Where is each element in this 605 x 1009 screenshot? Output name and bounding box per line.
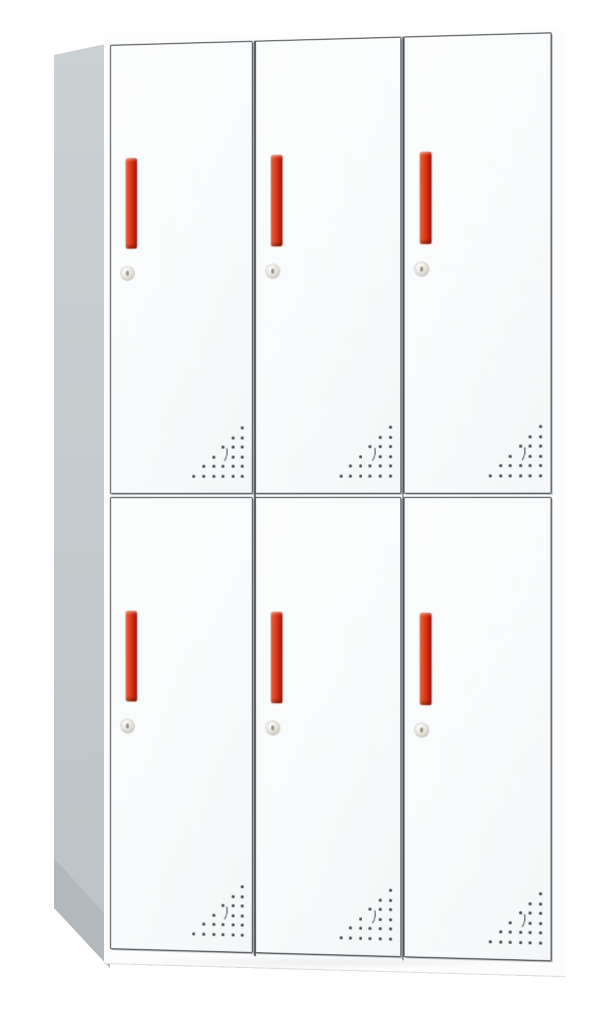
vent-hole-dot [241,885,244,888]
vent-hole-dot [489,474,492,477]
vent-hole-dot [539,902,542,905]
locker-door-r2-c2 [255,497,401,957]
vent-hole-dot [193,475,196,478]
floor-shadow [110,958,546,968]
vent-hole-dot [241,465,244,468]
vent-hole-dot [539,464,542,467]
vent-hole-dot [529,474,532,477]
vent-hole-dot [231,465,234,468]
vent-crescent [217,903,229,922]
vent-hole-dot [379,445,382,448]
vent-hole-dot [369,937,372,940]
vent-hole-dot [241,924,244,927]
vent-hole-dot [389,455,392,458]
vent-hole-dot [359,475,362,478]
locker-door-r1-c2 [255,37,401,494]
vent-hole-dot [529,435,532,438]
vent-hole-dot [231,446,234,449]
vent-holes [193,884,245,937]
vent-hole-dot [509,921,512,924]
vent-hole-dot [379,435,382,438]
vent-hole-dot [379,898,382,901]
vent-hole-dot [499,940,502,943]
vent-hole-dot [529,902,532,905]
vent-hole-dot [241,446,244,449]
vent-hole-dot [389,938,392,941]
vent-hole-dot [539,912,542,915]
vent-hole-dot [529,922,532,925]
vent-hole-dot [369,465,372,468]
locker-door-r1-c1 [110,41,253,494]
vent-crescent [514,444,526,463]
vent-hole-dot [212,923,215,926]
door-lock [415,262,428,275]
vent-hole-dot [231,895,234,898]
vent-hole-dot [241,934,244,937]
vent-hole-dot [509,931,512,934]
vent-hole-dot [349,475,352,478]
vent-hole-dot [539,922,542,925]
vent-hole-dot [539,455,542,458]
door-lock [121,719,134,732]
vent-hole-dot [241,905,244,908]
vent-hole-dot [193,932,196,935]
door-handle [272,155,283,246]
vent-hole-dot [379,465,382,468]
vent-hole-dot [529,941,532,944]
vent-hole-dot [222,923,225,926]
doors-grid [110,32,552,964]
locker-door-r1-c3 [403,32,551,494]
vent-hole-dot [509,941,512,944]
vent-hole-dot [222,465,225,468]
vent-hole-dot [349,465,352,468]
vent-hole-dot [539,892,542,895]
keyhole-icon [272,269,275,274]
vent-holes [339,426,391,478]
vent-hole-dot [241,436,244,439]
door-handle [272,612,283,703]
vent-hole-dot [359,927,362,930]
vent-hole-dot [389,908,392,911]
vent-hole-dot [489,940,492,943]
vent-hole-dot [379,455,382,458]
vent-hole-dot [509,464,512,467]
vent-hole-dot [359,917,362,920]
vent-hole-dot [359,455,362,458]
vent-hole-dot [529,912,532,915]
keyhole-icon [420,727,423,732]
vent-hole-dot [529,455,532,458]
vent-hole-dot [241,895,244,898]
vent-hole-dot [389,426,392,429]
keyhole-icon [126,271,129,276]
vent-hole-dot [379,908,382,911]
keyhole-icon [420,266,423,271]
vent-hole-dot [519,474,522,477]
vent-hole-dot [231,436,234,439]
vent-holes [193,426,245,478]
vent-hole-dot [529,931,532,934]
vent-hole-dot [241,475,244,478]
vent-hole-dot [222,475,225,478]
vent-holes [339,888,391,941]
vent-hole-dot [389,918,392,921]
vent-crescent [365,444,377,463]
vent-hole-dot [389,889,392,892]
vent-hole-dot [231,455,234,458]
vent-hole-dot [241,455,244,458]
vent-hole-dot [339,936,342,939]
vent-hole-dot [529,464,532,467]
vent-hole-dot [369,475,372,478]
vent-hole-dot [539,445,542,448]
door-lock [415,723,428,736]
product-photo-locker [0,0,605,1009]
vent-hole-dot [359,937,362,940]
vent-hole-dot [509,474,512,477]
keyhole-icon [126,723,129,728]
door-lock [121,267,134,280]
vent-hole-dot [529,445,532,448]
vent-hole-dot [231,933,234,936]
vent-hole-dot [241,426,244,429]
vent-hole-dot [212,914,215,917]
vent-hole-dot [509,455,512,458]
vent-hole-dot [202,933,205,936]
cabinet-side-panel [50,40,112,974]
vent-hole-dot [389,928,392,931]
door-lock [266,721,279,734]
vent-hole-dot [231,904,234,907]
vent-hole-dot [539,435,542,438]
vent-hole-dot [499,464,502,467]
vent-hole-dot [539,932,542,935]
vent-crescent [514,911,526,930]
vent-hole-dot [369,927,372,930]
vent-hole-dot [349,927,352,930]
vent-holes [489,425,542,477]
vent-hole-dot [202,475,205,478]
vent-hole-dot [389,435,392,438]
vent-crescent [365,907,377,926]
vent-hole-dot [212,465,215,468]
vent-hole-dot [231,924,234,927]
cabinet-side-shadow [50,40,112,974]
vent-hole-dot [379,918,382,921]
vent-hole-dot [499,474,502,477]
vent-hole-dot [379,927,382,930]
vent-hole-dot [379,937,382,940]
door-handle [126,158,137,248]
vent-hole-dot [202,923,205,926]
vent-hole-dot [539,474,542,477]
vent-hole-dot [389,898,392,901]
vent-hole-dot [212,455,215,458]
vent-hole-dot [241,914,244,917]
vent-hole-dot [212,475,215,478]
vent-hole-dot [519,941,522,944]
vent-crescent [217,445,229,463]
door-handle [126,611,137,701]
vent-hole-dot [349,936,352,939]
cabinet-front-panel [104,29,565,977]
vent-hole-dot [231,475,234,478]
vent-holes [489,891,542,945]
vent-hole-dot [539,941,542,944]
vent-hole-dot [539,425,542,428]
vent-hole-dot [389,465,392,468]
vent-hole-dot [339,475,342,478]
vent-hole-dot [389,445,392,448]
door-handle [420,152,431,244]
door-lock [266,264,279,277]
vent-hole-dot [519,931,522,934]
locker-door-r2-c3 [403,497,551,962]
vent-hole-dot [359,465,362,468]
door-handle [420,613,431,705]
vent-hole-dot [202,465,205,468]
vent-hole-dot [499,931,502,934]
vent-hole-dot [379,475,382,478]
vent-hole-dot [212,933,215,936]
vent-hole-dot [389,475,392,478]
keyhole-icon [272,725,275,730]
vent-hole-dot [231,914,234,917]
vent-hole-dot [519,464,522,467]
vent-hole-dot [222,933,225,936]
locker-door-r2-c1 [110,497,253,953]
